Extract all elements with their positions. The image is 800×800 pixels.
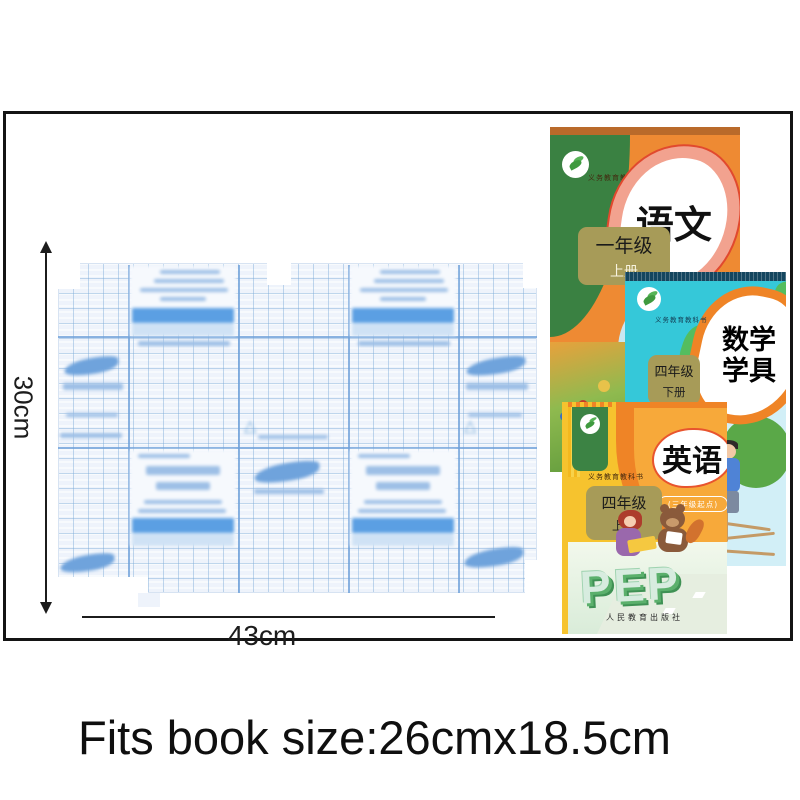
pep-letters: PEP — [579, 555, 683, 614]
film-brand-logo — [253, 458, 321, 485]
grade-text: 一年级 — [595, 231, 652, 258]
product-image: medium size :30*43 cm 10pcs 30cm — [0, 0, 800, 800]
book-top-strip — [625, 272, 786, 281]
film-bottom-tab — [138, 593, 160, 607]
film-text-row — [138, 341, 230, 346]
book-cover-film: △ △ — [58, 263, 537, 593]
book-green-corner — [572, 407, 608, 471]
book-title-line1: 数学 — [722, 325, 776, 356]
film-text-row — [468, 413, 522, 417]
film-panel-line — [458, 265, 460, 593]
film-notch — [267, 263, 291, 285]
film-text-row — [254, 489, 324, 494]
book-top-strip — [550, 127, 740, 135]
recycle-icon: △ — [244, 419, 256, 435]
film-printed-label — [130, 266, 236, 336]
film-text-row — [60, 433, 122, 438]
book-title-line2: 学具 — [722, 356, 776, 387]
film-panel-line — [58, 336, 537, 338]
height-arrow-down-icon — [40, 602, 52, 614]
film-notch — [523, 263, 537, 288]
series-text: 义务教育教科书 — [655, 314, 708, 324]
film-brand-logo — [59, 551, 116, 574]
book-english: 义务教育教科书 英语 (三年级起点) 四年级 上册 PEP 人民教育出版社 — [562, 402, 727, 634]
height-dimension-label: 30cm — [8, 369, 39, 447]
film-panel-line — [238, 265, 240, 593]
film-text-row — [66, 413, 118, 417]
film-text-row — [63, 383, 123, 390]
fits-book-size-text: Fits book size:26cmx18.5cm — [78, 710, 671, 765]
film-notch — [525, 560, 537, 593]
width-measure-line — [82, 616, 495, 618]
film-printed-label — [130, 450, 236, 546]
leaf-logo-icon — [637, 287, 661, 311]
film-brand-logo — [63, 354, 120, 377]
leaf-logo-icon — [562, 151, 589, 178]
recycle-icon: △ — [464, 419, 476, 435]
width-dimension-label: 43cm — [152, 620, 372, 652]
book-title: 英语 — [662, 436, 722, 480]
film-notch — [58, 263, 80, 289]
grade-box: 四年级 下册 — [648, 355, 700, 405]
girl-illustration — [624, 516, 636, 527]
leaf-logo-icon — [580, 414, 600, 434]
film-text-row — [258, 435, 328, 439]
bear-illustration — [666, 518, 679, 527]
film-text-row — [358, 341, 450, 346]
film-panel-line — [58, 447, 537, 449]
film-printed-label — [350, 450, 456, 546]
volume-text: 下册 — [663, 384, 686, 400]
bear-card-illustration — [665, 531, 683, 545]
publisher-text: 人民教育出版社 — [562, 612, 727, 623]
film-brand-logo — [465, 354, 527, 378]
height-arrow-line — [45, 252, 47, 604]
film-brand-logo — [463, 545, 525, 570]
title-blob: 英语 — [652, 428, 727, 488]
series-text: 义务教育教科书 — [588, 472, 644, 482]
film-printed-label — [350, 266, 456, 336]
grade-text: 四年级 — [654, 361, 693, 380]
film-notch — [58, 577, 148, 593]
illustration-detail — [598, 380, 610, 392]
film-text-row — [466, 383, 528, 390]
